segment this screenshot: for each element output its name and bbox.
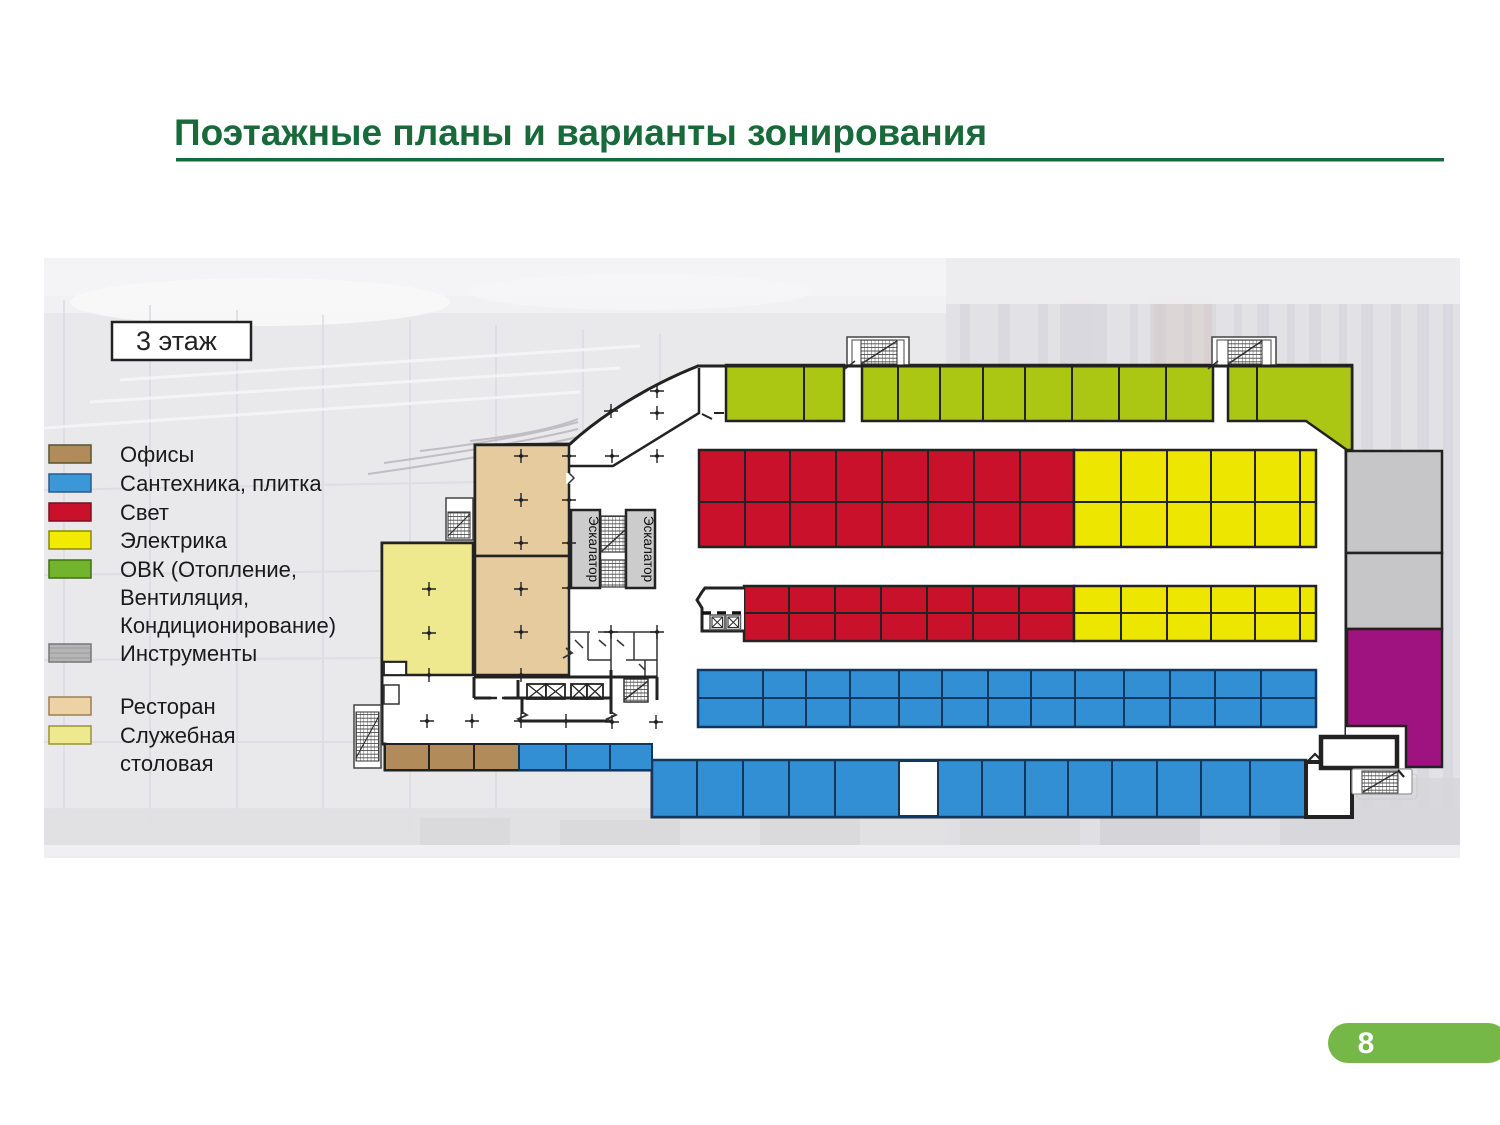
svg-text:3 этаж: 3 этаж (136, 326, 217, 356)
svg-text:ОВК (Отопление,: ОВК (Отопление, (120, 557, 297, 582)
svg-text:Сантехника, плитка: Сантехника, плитка (120, 471, 322, 496)
svg-text:Ресторан: Ресторан (120, 694, 216, 719)
svg-text:Инструменты: Инструменты (120, 641, 257, 666)
svg-text:Служебная: Служебная (120, 723, 236, 748)
svg-text:Эскалатор: Эскалатор (641, 516, 656, 582)
svg-text:столовая: столовая (120, 751, 214, 776)
svg-text:Кондиционирование): Кондиционирование) (120, 613, 336, 638)
svg-text:Вентиляция,: Вентиляция, (120, 585, 249, 610)
svg-text:Эскалатор: Эскалатор (586, 516, 601, 582)
svg-text:Свет: Свет (120, 500, 169, 525)
svg-text:Электрика: Электрика (120, 528, 228, 553)
svg-text:8: 8 (1358, 1027, 1375, 1060)
svg-text:Поэтажные планы и варианты зон: Поэтажные планы и варианты зонирования (174, 112, 987, 153)
svg-text:Офисы: Офисы (120, 442, 194, 467)
